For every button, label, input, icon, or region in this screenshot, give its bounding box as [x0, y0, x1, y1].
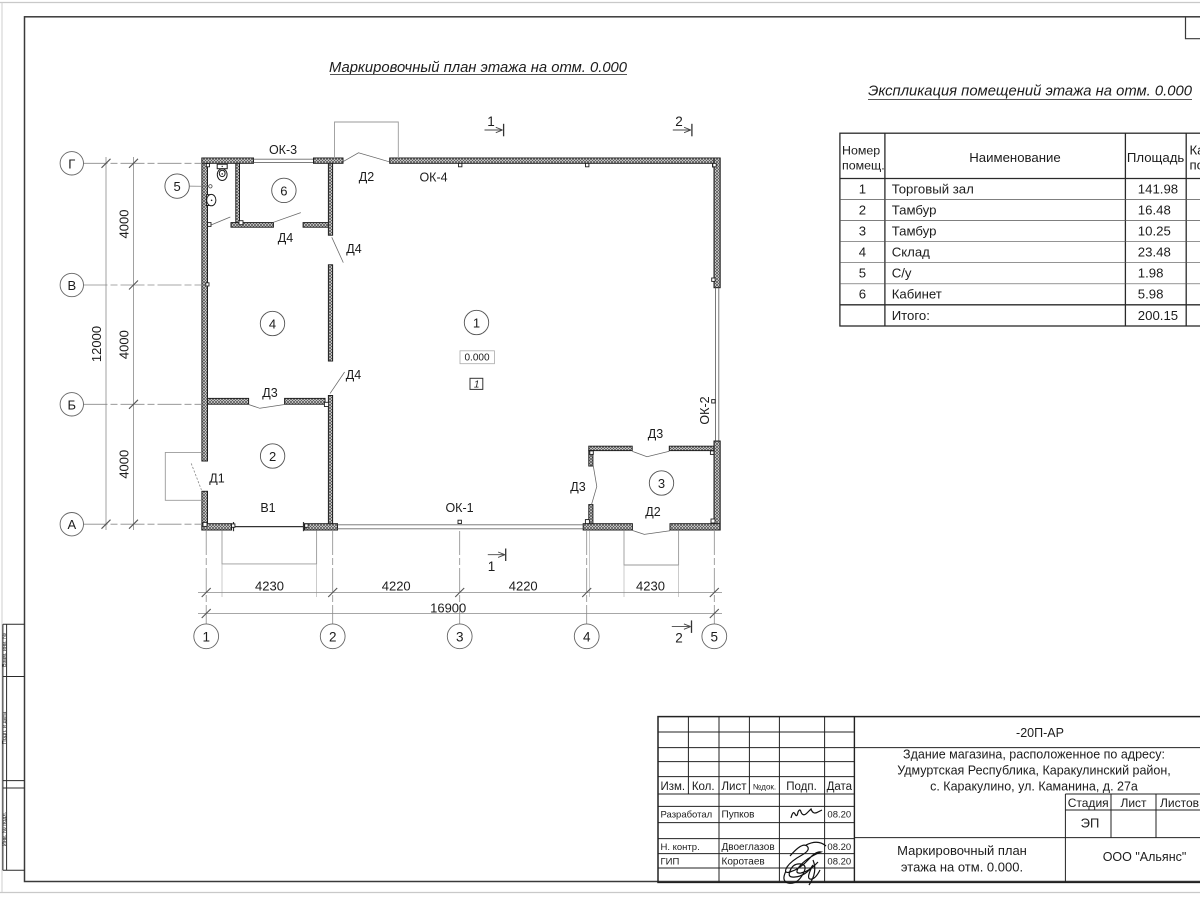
svg-text:Удмуртская Республика, Каракул: Удмуртская Республика, Каракулинский рай…	[897, 764, 1171, 778]
svg-text:Подп.: Подп.	[786, 781, 817, 793]
svg-text:08.20: 08.20	[827, 842, 851, 853]
svg-text:Г: Г	[68, 156, 75, 171]
svg-text:5: 5	[711, 629, 719, 644]
svg-text:Д2: Д2	[645, 505, 660, 519]
svg-text:1: 1	[202, 629, 210, 644]
svg-text:Подп. и дата: Подп. и дата	[2, 711, 8, 744]
svg-text:Кол.: Кол.	[692, 781, 715, 793]
svg-text:Д1: Д1	[209, 471, 224, 485]
svg-text:1: 1	[487, 114, 495, 129]
svg-text:2: 2	[675, 631, 683, 646]
svg-text:08.20: 08.20	[827, 810, 851, 821]
svg-text:ОК-1: ОК-1	[445, 501, 473, 515]
svg-text:6: 6	[859, 287, 866, 302]
svg-text:А: А	[67, 517, 76, 532]
svg-text:Лист: Лист	[1120, 796, 1147, 810]
svg-text:Б: Б	[68, 397, 77, 412]
svg-text:В1: В1	[260, 501, 275, 515]
svg-text:2: 2	[859, 203, 866, 218]
svg-text:200.15: 200.15	[1138, 308, 1178, 323]
svg-text:Кат.: Кат.	[1190, 143, 1200, 158]
svg-text:4230: 4230	[636, 578, 665, 593]
svg-text:этажа на отм. 0.000.: этажа на отм. 0.000.	[901, 859, 1023, 874]
svg-text:3: 3	[859, 224, 866, 239]
svg-text:В: В	[67, 278, 76, 293]
svg-text:6: 6	[280, 183, 287, 198]
svg-text:Взам. инв. №: Взам. инв. №	[2, 633, 8, 667]
svg-text:2: 2	[675, 114, 683, 129]
svg-text:10.25: 10.25	[1138, 224, 1171, 239]
svg-text:Инв. № подл.: Инв. № подл.	[2, 811, 8, 846]
svg-text:5: 5	[859, 266, 866, 281]
svg-text:№док.: №док.	[753, 783, 776, 792]
svg-text:4220: 4220	[382, 578, 411, 593]
svg-text:Пупков: Пупков	[722, 810, 755, 821]
svg-text:1: 1	[488, 559, 496, 574]
svg-text:Д3: Д3	[570, 480, 585, 494]
svg-text:Д3: Д3	[262, 386, 277, 400]
svg-text:4: 4	[269, 317, 276, 332]
svg-text:Лист: Лист	[722, 781, 748, 793]
svg-text:2: 2	[329, 629, 337, 644]
svg-text:4: 4	[859, 245, 866, 260]
svg-text:Номер: Номер	[842, 144, 880, 158]
svg-text:помещ.: помещ.	[842, 159, 885, 173]
svg-text:08.20: 08.20	[827, 857, 851, 868]
svg-text:4000: 4000	[117, 450, 132, 479]
svg-text:Торговый зал: Торговый зал	[892, 182, 974, 197]
svg-text:ОК-4: ОК-4	[419, 171, 447, 185]
svg-text:ГИП: ГИП	[661, 857, 680, 868]
svg-text:Маркировочный план: Маркировочный план	[897, 843, 1027, 858]
svg-text:2: 2	[269, 449, 276, 464]
svg-text:ОК-2: ОК-2	[698, 396, 712, 424]
svg-text:141.98: 141.98	[1138, 182, 1178, 197]
svg-text:-20П-АР: -20П-АР	[1016, 726, 1064, 740]
svg-text:Д3: Д3	[648, 427, 663, 441]
svg-text:16900: 16900	[430, 600, 466, 615]
svg-text:5.98: 5.98	[1138, 287, 1164, 302]
svg-text:Кабинет: Кабинет	[892, 287, 942, 302]
svg-text:Двоеглазов: Двоеглазов	[722, 842, 775, 853]
svg-text:Листов: Листов	[1160, 796, 1199, 810]
svg-text:Итого:: Итого:	[892, 308, 930, 323]
svg-text:1.98: 1.98	[1138, 266, 1164, 281]
svg-text:0.000: 0.000	[464, 352, 489, 363]
svg-text:ОК-3: ОК-3	[269, 143, 297, 157]
svg-text:3: 3	[658, 476, 665, 491]
svg-text:Здание магазина, расположенное: Здание магазина, расположенное по адресу…	[903, 748, 1165, 762]
svg-text:4230: 4230	[255, 578, 284, 593]
svg-text:23.48: 23.48	[1138, 245, 1171, 260]
svg-text:Тамбур: Тамбур	[892, 203, 937, 218]
svg-text:Изм.: Изм.	[660, 781, 685, 793]
svg-text:Наименование: Наименование	[969, 150, 1060, 165]
svg-text:5: 5	[173, 179, 180, 194]
svg-text:Д4: Д4	[346, 242, 361, 256]
svg-text:ЭП: ЭП	[1081, 816, 1100, 831]
svg-text:Склад: Склад	[892, 245, 930, 260]
svg-text:16.48: 16.48	[1138, 203, 1171, 218]
svg-text:1: 1	[474, 380, 480, 391]
svg-text:Экспликация помещений этажа на: Экспликация помещений этажа на отм. 0.00…	[868, 84, 1193, 100]
svg-text:12000: 12000	[89, 326, 104, 362]
svg-text:Стадия: Стадия	[1068, 796, 1109, 810]
svg-text:Коротаев: Коротаев	[722, 857, 765, 868]
svg-text:Д4: Д4	[346, 368, 361, 382]
svg-text:с. Каракулино, ул. Каманина, д: с. Каракулино, ул. Каманина, д. 27а	[930, 780, 1138, 794]
svg-text:ООО "Альянс": ООО "Альянс"	[1103, 850, 1187, 864]
svg-text:Д4: Д4	[278, 231, 293, 245]
svg-text:Д2: Д2	[359, 170, 374, 184]
svg-text:Дата: Дата	[827, 781, 853, 793]
svg-text:Площадь: Площадь	[1127, 150, 1185, 165]
svg-text:1: 1	[473, 316, 480, 331]
svg-text:4000: 4000	[117, 330, 132, 359]
svg-text:С/у: С/у	[892, 266, 912, 281]
svg-text:4220: 4220	[509, 578, 538, 593]
svg-text:пом: пом	[1190, 158, 1200, 173]
svg-text:4000: 4000	[117, 210, 132, 239]
svg-text:1: 1	[859, 182, 866, 197]
svg-text:Маркировочный план этажа на от: Маркировочный план этажа на отм. 0.000	[329, 60, 628, 76]
svg-text:Тамбур: Тамбур	[892, 224, 937, 239]
svg-text:3: 3	[456, 629, 464, 644]
svg-text:Н. контр.: Н. контр.	[661, 842, 700, 853]
svg-text:4: 4	[583, 629, 591, 644]
svg-text:Разработал: Разработал	[661, 810, 713, 821]
